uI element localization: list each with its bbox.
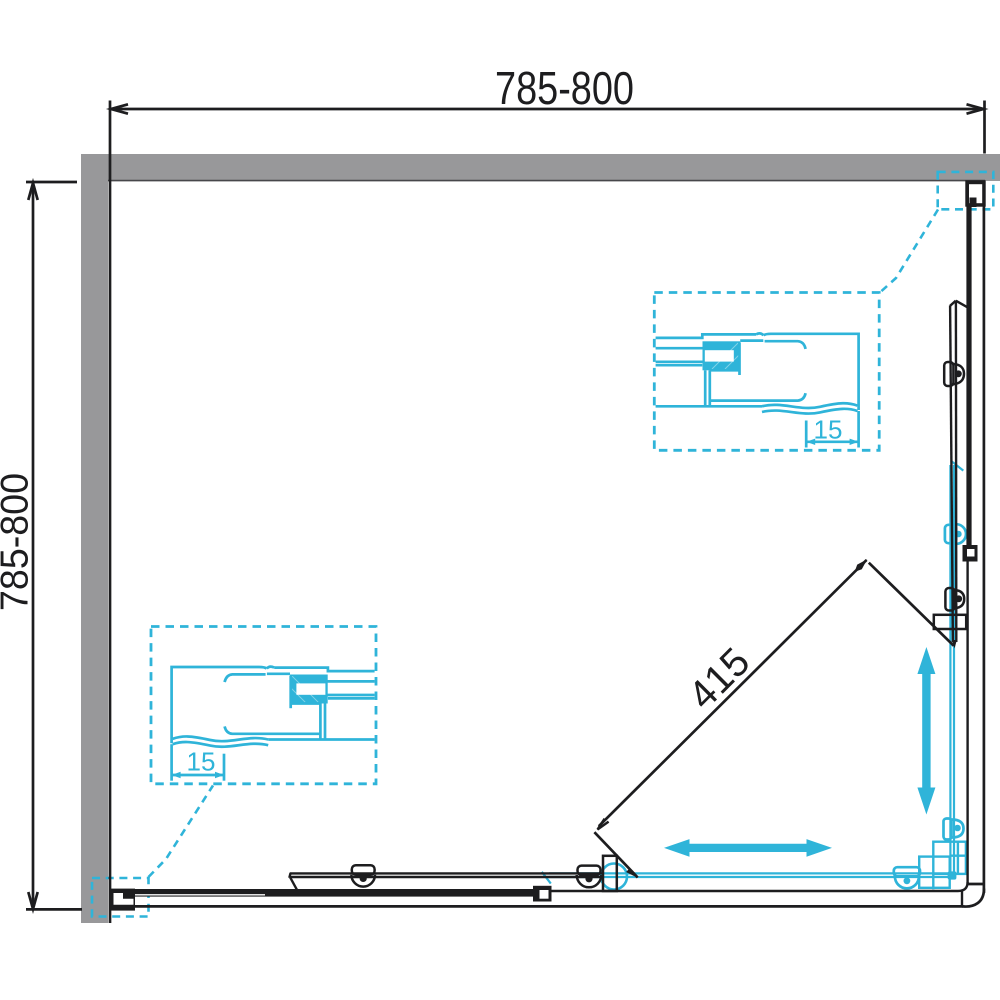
svg-text:15: 15 — [814, 415, 843, 445]
svg-text:785-800: 785-800 — [495, 62, 634, 114]
svg-text:15: 15 — [187, 747, 216, 777]
svg-text:785-800: 785-800 — [0, 473, 37, 611]
